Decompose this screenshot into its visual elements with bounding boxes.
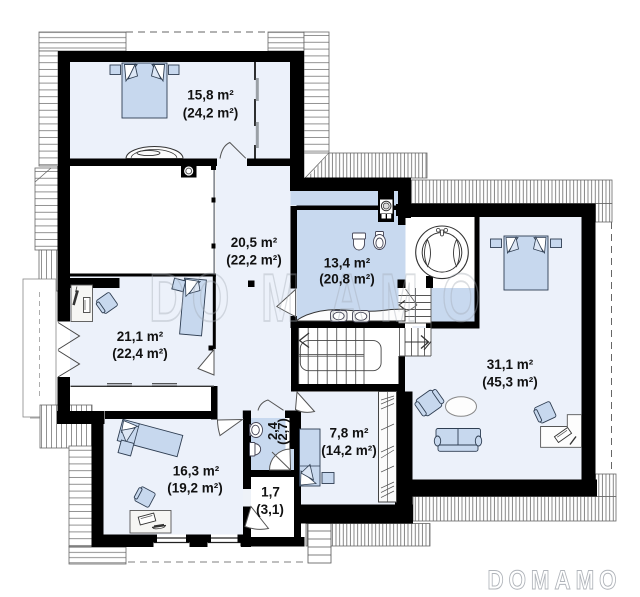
svg-text:13,4 m²: 13,4 m²: [324, 256, 371, 271]
svg-text:(3,1): (3,1): [256, 502, 284, 517]
svg-text:O: O: [192, 260, 230, 336]
svg-text:O: O: [442, 260, 480, 336]
svg-text:D: D: [149, 260, 185, 336]
svg-text:7,8 m²: 7,8 m²: [329, 426, 369, 441]
svg-text:15,8 m²: 15,8 m²: [187, 88, 234, 103]
svg-text:16,3 m²: 16,3 m²: [173, 464, 220, 479]
svg-text:DOMAMO: DOMAMO: [488, 565, 622, 595]
svg-text:(20,8 m²): (20,8 m²): [319, 272, 375, 287]
svg-text:31,1 m²: 31,1 m²: [487, 357, 534, 372]
svg-text:(19,2 m²): (19,2 m²): [167, 481, 223, 496]
svg-text:(45,3 m²): (45,3 m²): [482, 375, 538, 390]
svg-text:(14,2 m²): (14,2 m²): [321, 443, 377, 458]
svg-text:(24,2 m²): (24,2 m²): [183, 106, 239, 121]
svg-text:20,5 m²: 20,5 m²: [231, 235, 278, 250]
svg-text:(22,2 m²): (22,2 m²): [226, 253, 282, 268]
svg-text:M: M: [380, 260, 418, 336]
svg-text:M: M: [261, 260, 299, 336]
svg-text:1,7: 1,7: [261, 485, 280, 500]
svg-text:(22,4 m²): (22,4 m²): [112, 346, 168, 361]
svg-text:(2,7): (2,7): [275, 418, 290, 445]
svg-text:21,1 m²: 21,1 m²: [117, 329, 164, 344]
